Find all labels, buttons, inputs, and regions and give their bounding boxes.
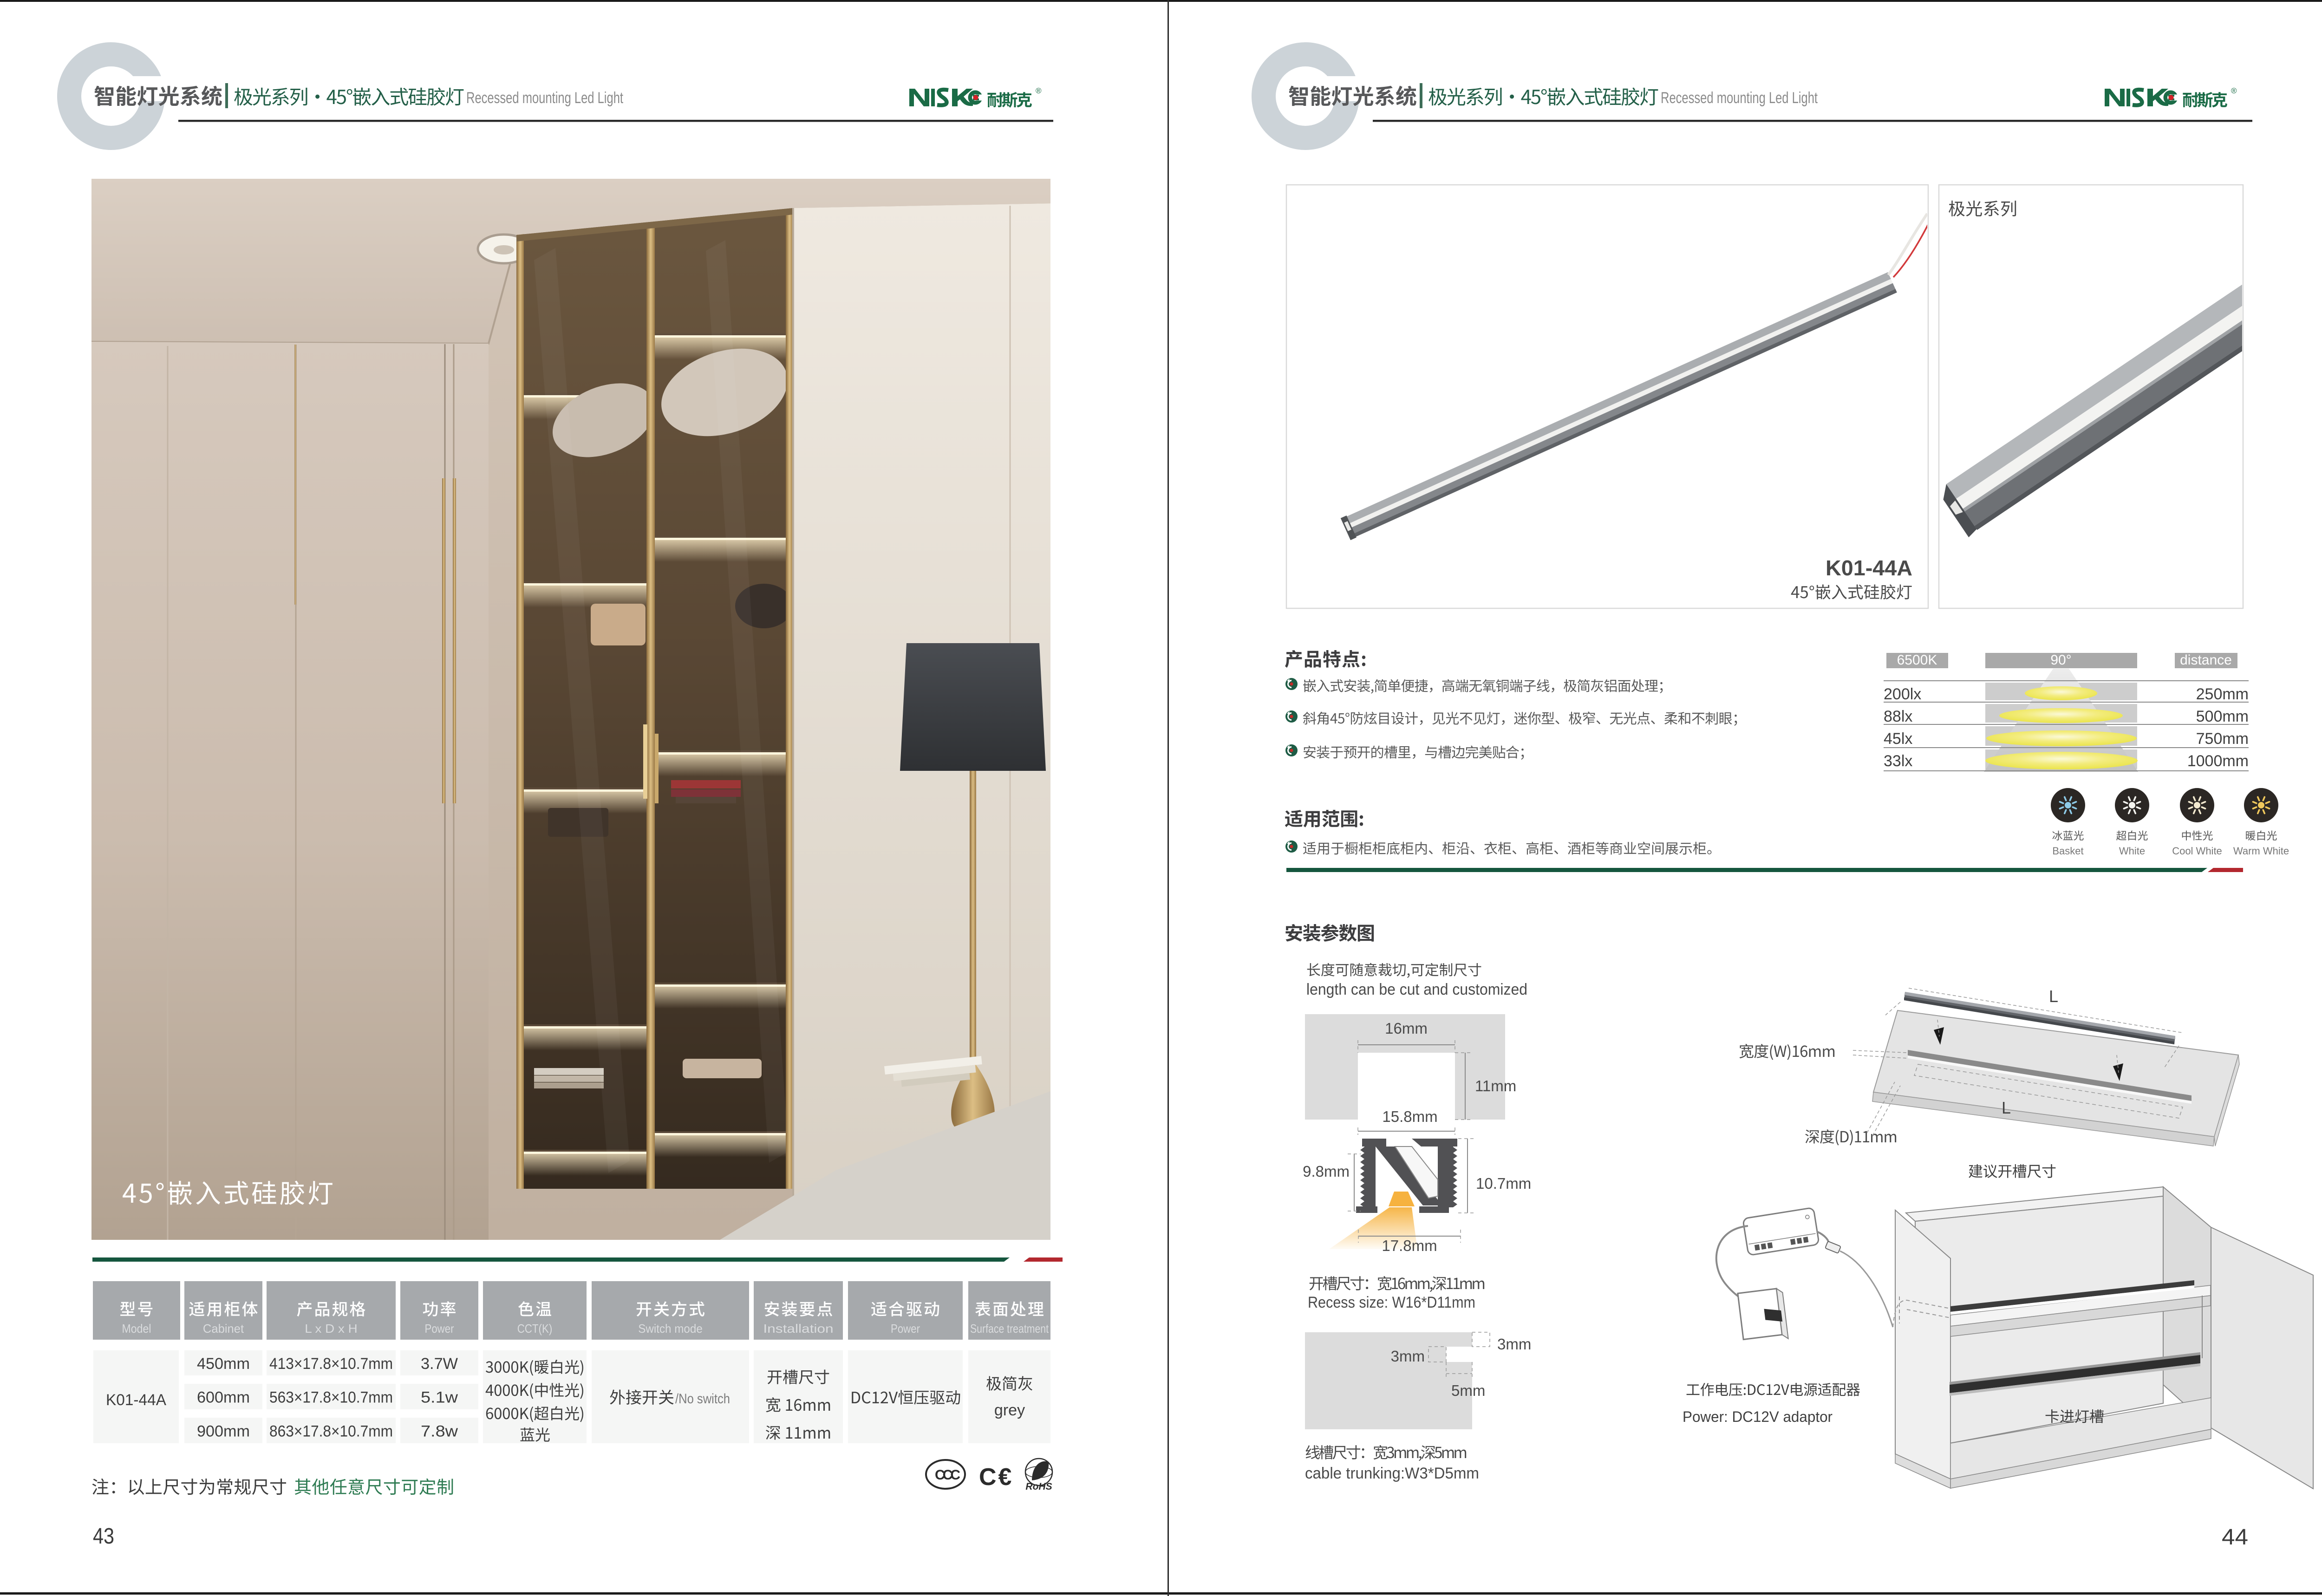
svg-text:Cabinet: Cabinet	[203, 1322, 244, 1335]
svg-text:90°: 90°	[2050, 652, 2071, 668]
svg-text:®: ®	[1036, 86, 1042, 95]
svg-text:Recess size: W16*D11mm: Recess size: W16*D11mm	[1308, 1294, 1475, 1311]
svg-text:cable trunking:W3*D5mm: cable trunking:W3*D5mm	[1305, 1465, 1479, 1482]
svg-text:CCC: CCC	[935, 1467, 960, 1483]
svg-text:250mm: 250mm	[2196, 685, 2249, 703]
svg-text:15.8mm: 15.8mm	[1382, 1108, 1437, 1125]
svg-text:distance: distance	[2180, 652, 2232, 668]
svg-text:17.8mm: 17.8mm	[1382, 1237, 1437, 1254]
svg-text:11mm: 11mm	[1475, 1077, 1516, 1094]
svg-text:length can be cut and customiz: length can be cut and customized	[1306, 981, 1527, 998]
svg-text:16mm: 16mm	[1385, 1020, 1428, 1037]
svg-text:K01-44A: K01-44A	[1826, 556, 1912, 580]
svg-text:Warm White: Warm White	[2233, 845, 2289, 857]
svg-text:C€: C€	[979, 1464, 1013, 1491]
svg-text:45lx: 45lx	[1884, 730, 1912, 748]
svg-text:Model: Model	[122, 1322, 151, 1335]
svg-text:Power: Power	[891, 1322, 920, 1335]
svg-text:Recessed mounting Led Light: Recessed mounting Led Light	[1661, 89, 1818, 107]
svg-text:900mm: 900mm	[197, 1423, 250, 1440]
svg-text:grey: grey	[994, 1401, 1025, 1419]
svg-text:White: White	[2119, 845, 2145, 857]
svg-text:®: ®	[2231, 86, 2237, 95]
svg-text:Surface treatment: Surface treatment	[970, 1322, 1049, 1335]
svg-text:33lx: 33lx	[1884, 752, 1912, 770]
svg-text:7.8w: 7.8w	[421, 1423, 458, 1440]
svg-text:CCT(K): CCT(K)	[517, 1322, 553, 1335]
svg-text:Power: DC12V adaptor: Power: DC12V adaptor	[1683, 1408, 1833, 1425]
svg-text:200lx: 200lx	[1884, 685, 1921, 703]
svg-text:RoHS: RoHS	[1025, 1481, 1052, 1492]
svg-text:K01-44A: K01-44A	[106, 1391, 166, 1409]
svg-text:Recessed mounting Led Light: Recessed mounting Led Light	[466, 89, 623, 107]
svg-text:6500K: 6500K	[1897, 652, 1937, 668]
svg-text:43: 43	[93, 1524, 114, 1549]
svg-text:10.7mm: 10.7mm	[1476, 1175, 1531, 1192]
svg-text:600mm: 600mm	[197, 1389, 250, 1407]
svg-text:L x D x H: L x D x H	[305, 1322, 357, 1335]
svg-text:Installation: Installation	[763, 1322, 833, 1335]
svg-text:Cool White: Cool White	[2172, 845, 2222, 857]
svg-text:9.8mm: 9.8mm	[1303, 1163, 1350, 1180]
svg-text:3mm: 3mm	[1497, 1335, 1531, 1353]
svg-text:5.1w: 5.1w	[421, 1389, 458, 1407]
svg-text:Power: Power	[425, 1322, 454, 1335]
svg-text:L: L	[2002, 1098, 2011, 1117]
svg-text:450mm: 450mm	[197, 1355, 250, 1373]
svg-text:Basket: Basket	[2052, 845, 2083, 857]
svg-text:863×17.8×10.7mm: 863×17.8×10.7mm	[269, 1423, 393, 1440]
svg-text:5mm: 5mm	[1451, 1382, 1485, 1399]
svg-text:1000mm: 1000mm	[2187, 752, 2249, 770]
svg-text:44: 44	[2222, 1525, 2248, 1550]
svg-text:L: L	[2049, 987, 2058, 1006]
svg-text:3.7W: 3.7W	[421, 1355, 458, 1373]
svg-text:750mm: 750mm	[2196, 730, 2249, 748]
svg-text:3mm: 3mm	[1391, 1348, 1425, 1365]
svg-text:563×17.8×10.7mm: 563×17.8×10.7mm	[269, 1389, 393, 1407]
svg-text:500mm: 500mm	[2196, 708, 2249, 725]
svg-text:413×17.8×10.7mm: 413×17.8×10.7mm	[269, 1355, 393, 1373]
svg-text:Switch mode: Switch mode	[638, 1322, 703, 1335]
svg-text:/No switch: /No switch	[675, 1391, 730, 1407]
svg-text:88lx: 88lx	[1884, 708, 1912, 725]
